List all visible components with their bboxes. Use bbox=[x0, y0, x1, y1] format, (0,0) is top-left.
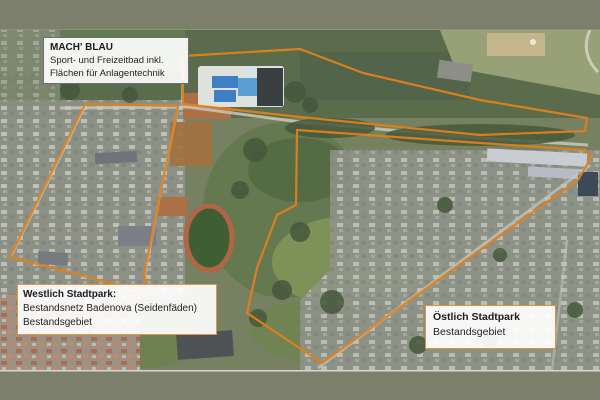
label-mach-blau-title: MACH' BLAU bbox=[50, 41, 182, 54]
map-bottom-edge bbox=[0, 370, 600, 372]
pool-complex bbox=[198, 66, 284, 107]
label-mach-blau-line2: Flächen für Anlagentechnik bbox=[50, 67, 182, 80]
label-oestlich-stadtpark: Östlich Stadtpark Bestandsgebiet bbox=[425, 305, 556, 349]
running-track bbox=[186, 206, 232, 270]
label-oestlich-line1: Bestandsgebiet bbox=[433, 325, 548, 340]
slide-canvas: MACH' BLAU Sport- und Freizeitbad inkl. … bbox=[0, 0, 600, 400]
pool-building bbox=[257, 68, 283, 106]
label-mach-blau-line1: Sport- und Freizeitbad inkl. bbox=[50, 54, 182, 67]
bottom-bar bbox=[0, 372, 600, 400]
label-westlich-line1: Bestandsnetz Badenova (Seidenfäden) bbox=[23, 302, 211, 316]
map-top-edge bbox=[0, 29, 600, 30]
label-westlich-stadtpark: Westlich Stadtpark: Bestandsnetz Badenov… bbox=[17, 284, 217, 335]
label-westlich-line2: Bestandsgebiet bbox=[23, 316, 211, 330]
top-bar bbox=[0, 0, 600, 30]
label-westlich-title: Westlich Stadtpark: bbox=[23, 288, 211, 302]
label-mach-blau: MACH' BLAU Sport- und Freizeitbad inkl. … bbox=[43, 37, 189, 84]
label-oestlich-title: Östlich Stadtpark bbox=[433, 310, 548, 325]
